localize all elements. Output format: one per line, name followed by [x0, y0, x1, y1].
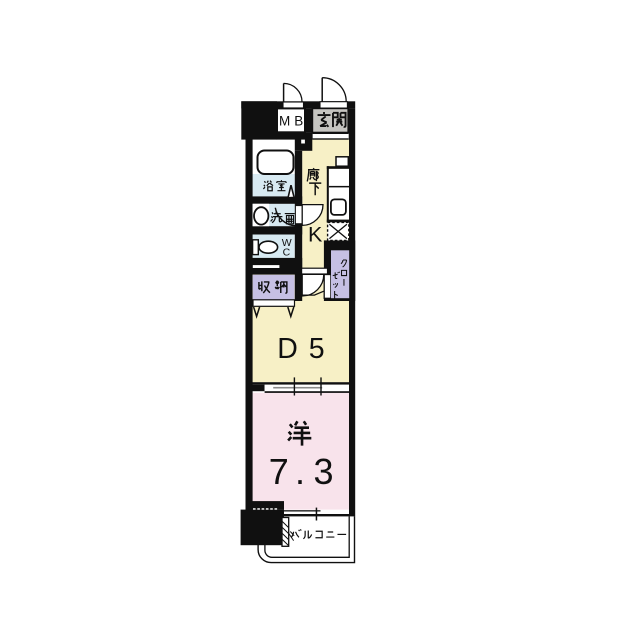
- svg-text:7: 7: [269, 451, 289, 492]
- svg-text:K: K: [308, 223, 323, 247]
- svg-text:.: .: [295, 451, 305, 492]
- svg-text:MB: MB: [279, 114, 307, 129]
- svg-text:C: C: [283, 247, 291, 259]
- svg-text:5: 5: [309, 333, 325, 365]
- svg-text:D: D: [277, 333, 298, 365]
- svg-text:3: 3: [314, 451, 334, 492]
